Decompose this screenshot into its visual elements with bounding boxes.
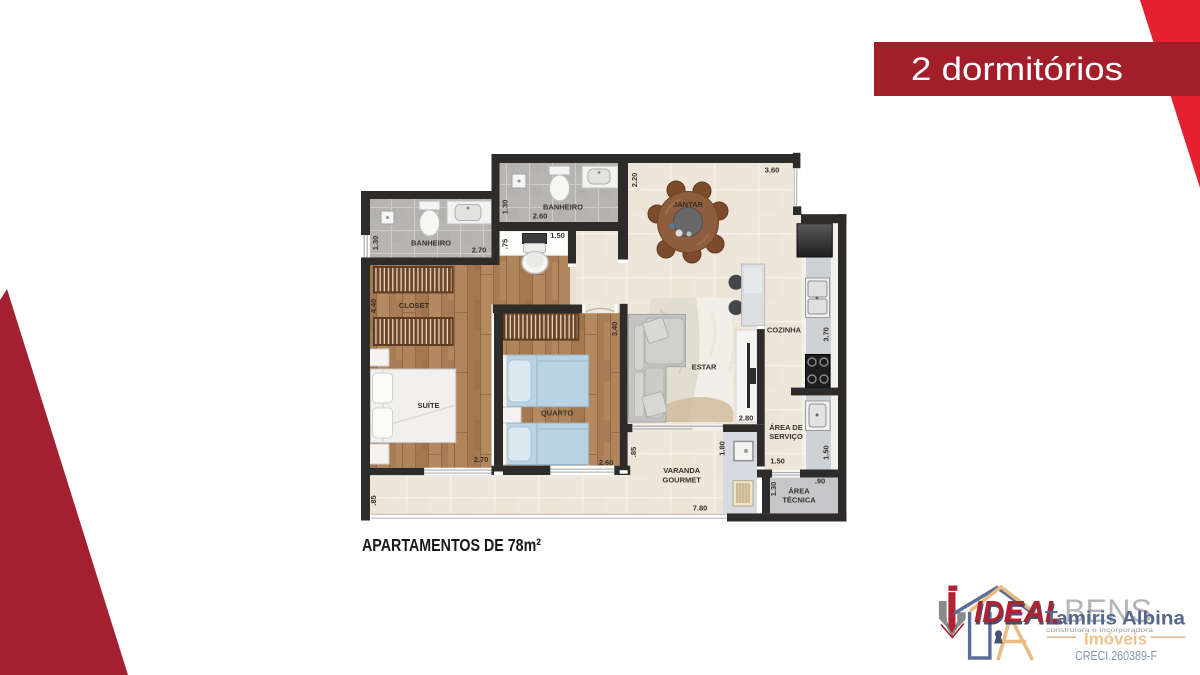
- svg-text:BANHEIRO: BANHEIRO: [543, 203, 583, 212]
- svg-text:1.30: 1.30: [769, 482, 778, 497]
- svg-text:CLOSET: CLOSET: [399, 301, 430, 310]
- svg-text:SERVIÇO: SERVIÇO: [769, 432, 803, 441]
- svg-text:2.70: 2.70: [472, 246, 487, 255]
- svg-text:SUÍTE: SUÍTE: [417, 401, 439, 410]
- svg-text:GOURMET: GOURMET: [663, 476, 702, 485]
- svg-text:1.30: 1.30: [371, 236, 380, 251]
- svg-text:2.80: 2.80: [739, 414, 754, 423]
- svg-text:1.30: 1.30: [501, 200, 510, 215]
- svg-text:COZINHA: COZINHA: [767, 326, 802, 335]
- svg-text:CRECI.260389-F: CRECI.260389-F: [1075, 648, 1157, 663]
- svg-text:3.70: 3.70: [822, 327, 831, 342]
- svg-text:Imóveis: Imóveis: [1084, 630, 1147, 649]
- svg-text:1.50: 1.50: [770, 457, 785, 466]
- svg-text:2.70: 2.70: [474, 455, 489, 464]
- svg-text:2.60: 2.60: [533, 212, 548, 221]
- svg-text:.85: .85: [369, 495, 378, 505]
- svg-text:QUARTO: QUARTO: [541, 408, 574, 417]
- svg-text:.75: .75: [501, 239, 510, 249]
- svg-text:JANTAR: JANTAR: [673, 200, 703, 209]
- svg-text:APARTAMENTOS DE 78m²: APARTAMENTOS DE 78m²: [362, 535, 541, 555]
- svg-text:2 dormitórios: 2 dormitórios: [911, 51, 1123, 87]
- svg-text:BANHEIRO: BANHEIRO: [411, 239, 451, 248]
- svg-text:TÉCNICA: TÉCNICA: [782, 496, 816, 505]
- svg-text:.85: .85: [629, 447, 638, 457]
- svg-text:4.40: 4.40: [369, 299, 378, 314]
- svg-text:ESTAR: ESTAR: [692, 363, 717, 372]
- svg-text:VARANDA: VARANDA: [663, 466, 701, 475]
- svg-text:3.60: 3.60: [765, 166, 780, 175]
- svg-text:7.80: 7.80: [693, 504, 708, 513]
- svg-text:.90: .90: [815, 477, 825, 486]
- svg-text:Tamiris Albina: Tamiris Albina: [1045, 609, 1185, 630]
- svg-text:2.20: 2.20: [630, 173, 639, 188]
- svg-text:1.50: 1.50: [822, 445, 831, 460]
- svg-text:1.80: 1.80: [718, 441, 727, 456]
- svg-text:2.60: 2.60: [599, 458, 614, 467]
- svg-text:3.40: 3.40: [610, 322, 619, 337]
- svg-text:1.50: 1.50: [550, 231, 565, 240]
- svg-text:ÁREA DE: ÁREA DE: [769, 423, 802, 432]
- svg-text:ÁREA: ÁREA: [788, 487, 810, 496]
